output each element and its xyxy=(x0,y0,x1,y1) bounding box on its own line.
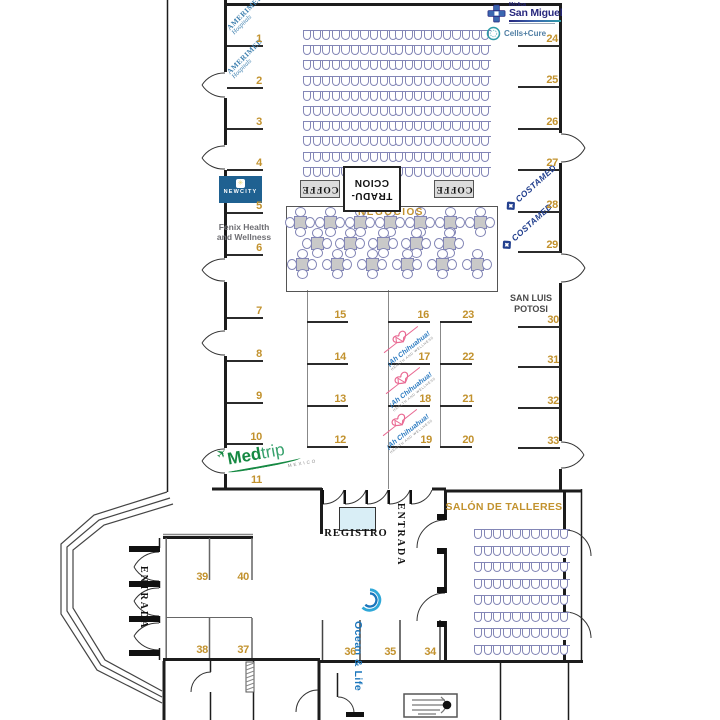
seat xyxy=(474,580,482,589)
seat xyxy=(380,107,388,116)
seat xyxy=(443,77,451,86)
seat xyxy=(313,168,321,177)
seat xyxy=(414,137,422,146)
newcity-logo-booth-5: NEWCITY xyxy=(219,176,262,203)
seat xyxy=(560,530,568,539)
seat xyxy=(452,168,460,177)
seating-block-salon xyxy=(474,529,570,655)
seat xyxy=(503,530,511,539)
seat xyxy=(370,137,378,146)
booth-2-number: 2 xyxy=(256,76,262,87)
seat xyxy=(405,122,413,131)
booth-14-number: 14 xyxy=(334,352,346,363)
seat-row xyxy=(303,76,399,86)
seat xyxy=(443,31,451,40)
seat xyxy=(503,580,511,589)
seat xyxy=(541,563,549,572)
seat xyxy=(531,596,539,605)
seat xyxy=(531,629,539,638)
seat xyxy=(433,168,441,177)
seat xyxy=(424,107,432,116)
ocean-wave-icon xyxy=(356,586,384,614)
seat xyxy=(322,61,330,70)
seat xyxy=(332,122,340,131)
seat xyxy=(313,61,321,70)
negocios-table xyxy=(357,249,387,279)
seat xyxy=(481,77,489,86)
seat xyxy=(433,31,441,40)
booth-23-number: 23 xyxy=(462,310,474,321)
seat-row xyxy=(303,136,399,146)
seat xyxy=(474,563,482,572)
seat xyxy=(303,92,311,101)
seat xyxy=(433,107,441,116)
seat xyxy=(493,530,501,539)
seat xyxy=(452,122,460,131)
seat xyxy=(462,153,470,162)
booth-26-number: 26 xyxy=(546,117,558,128)
seat xyxy=(474,613,482,622)
seat xyxy=(472,46,480,55)
seat xyxy=(414,107,422,116)
seat-row xyxy=(395,76,491,86)
seat-row xyxy=(474,628,570,638)
seat xyxy=(472,168,480,177)
booth-7-number: 7 xyxy=(256,306,262,317)
seat xyxy=(313,122,321,131)
seat xyxy=(414,31,422,40)
seat xyxy=(332,137,340,146)
booth-20-number: 20 xyxy=(462,435,474,446)
angled-corridor-walls xyxy=(61,492,173,703)
booth-8-number: 8 xyxy=(256,349,262,360)
seat xyxy=(303,122,311,131)
seat xyxy=(452,137,460,146)
seat xyxy=(341,61,349,70)
seat xyxy=(424,137,432,146)
seat xyxy=(560,613,568,622)
seat xyxy=(341,137,349,146)
seat xyxy=(433,61,441,70)
seat xyxy=(351,137,359,146)
seat xyxy=(370,31,378,40)
negocios-table xyxy=(322,249,352,279)
booth-39-number: 39 xyxy=(196,572,208,583)
seat xyxy=(462,92,470,101)
booth-10-number: 10 xyxy=(250,432,262,443)
seat xyxy=(462,31,470,40)
seat xyxy=(541,596,549,605)
seat xyxy=(474,646,482,655)
seat xyxy=(370,153,378,162)
seat xyxy=(531,563,539,572)
seat xyxy=(462,137,470,146)
seat xyxy=(462,77,470,86)
booth-13-number: 13 xyxy=(334,394,346,405)
booth-37-number: 37 xyxy=(237,645,249,656)
cells-cure-icon xyxy=(486,26,501,41)
seat xyxy=(380,122,388,131)
seat xyxy=(433,46,441,55)
booth-31-number: 31 xyxy=(547,355,559,366)
seat-row xyxy=(474,562,570,572)
seat xyxy=(405,46,413,55)
seat xyxy=(551,530,559,539)
seat xyxy=(351,153,359,162)
booth-16-number: 16 xyxy=(417,310,429,321)
seat xyxy=(493,629,501,638)
seat xyxy=(472,137,480,146)
seat xyxy=(341,77,349,86)
seat-row xyxy=(395,45,491,55)
seat xyxy=(405,107,413,116)
seat xyxy=(433,92,441,101)
seat xyxy=(332,107,340,116)
booth-15-number: 15 xyxy=(334,310,346,321)
seat xyxy=(481,153,489,162)
seat xyxy=(351,122,359,131)
seat-row xyxy=(303,91,399,101)
seat xyxy=(351,107,359,116)
seat xyxy=(332,153,340,162)
seat xyxy=(303,46,311,55)
seat xyxy=(503,563,511,572)
seat xyxy=(303,61,311,70)
seat xyxy=(484,547,492,556)
seat xyxy=(395,46,403,55)
seat xyxy=(493,563,501,572)
booth-21-number: 21 xyxy=(462,394,474,405)
booth-29-number: 29 xyxy=(546,240,558,251)
seat xyxy=(472,153,480,162)
seat xyxy=(474,596,482,605)
seat xyxy=(452,92,460,101)
booth-25-number: 25 xyxy=(546,75,558,86)
seat xyxy=(414,168,422,177)
seat xyxy=(522,629,530,638)
seat xyxy=(541,629,549,638)
newcity-flower-icon xyxy=(236,179,245,188)
seat xyxy=(481,46,489,55)
seat xyxy=(322,137,330,146)
cells-cure-logo-booth-24: Cells+Cure xyxy=(486,26,546,41)
seat xyxy=(531,613,539,622)
san-miguel-tagline-line xyxy=(509,23,555,24)
seat xyxy=(481,107,489,116)
seat xyxy=(551,613,559,622)
hatched-wall xyxy=(246,662,254,692)
seat xyxy=(472,61,480,70)
seat xyxy=(481,168,489,177)
booth-24-number: 24 xyxy=(546,34,558,45)
seat xyxy=(351,77,359,86)
translation-booth: TRADU- CCION xyxy=(343,166,401,212)
booth-6-number: 6 xyxy=(256,243,262,254)
seat xyxy=(313,137,321,146)
seating-block-top-right xyxy=(395,30,491,177)
seat xyxy=(541,613,549,622)
seat xyxy=(560,596,568,605)
seat xyxy=(303,31,311,40)
seat xyxy=(414,92,422,101)
seat xyxy=(531,580,539,589)
seat xyxy=(395,61,403,70)
seat-row xyxy=(395,60,491,70)
seat xyxy=(522,580,530,589)
seat xyxy=(512,596,520,605)
seat xyxy=(370,107,378,116)
seat xyxy=(380,137,388,146)
seat xyxy=(493,596,501,605)
seat xyxy=(405,61,413,70)
seat xyxy=(360,92,368,101)
seat xyxy=(360,122,368,131)
seat xyxy=(332,46,340,55)
booth-19-number: 19 xyxy=(420,435,432,446)
seat xyxy=(370,46,378,55)
seat xyxy=(493,613,501,622)
booth-12-number: 12 xyxy=(334,435,346,446)
seat xyxy=(395,92,403,101)
seat xyxy=(313,107,321,116)
negocios-table xyxy=(287,249,317,279)
seat xyxy=(405,92,413,101)
escalator-icon xyxy=(404,694,457,717)
seat xyxy=(443,92,451,101)
seat-row xyxy=(303,106,399,116)
seat xyxy=(380,46,388,55)
booth-30-number: 30 xyxy=(547,315,559,326)
booth-33-number: 33 xyxy=(547,436,559,447)
seat xyxy=(474,530,482,539)
seat xyxy=(452,31,460,40)
seat xyxy=(512,613,520,622)
coffee-stand-left: COFFE xyxy=(300,180,340,198)
seat xyxy=(360,107,368,116)
seat xyxy=(424,122,432,131)
seat xyxy=(481,122,489,131)
seat xyxy=(472,92,480,101)
seat-row xyxy=(303,60,399,70)
seat-row xyxy=(303,45,399,55)
seat xyxy=(551,596,559,605)
seat xyxy=(462,61,470,70)
seat xyxy=(303,77,311,86)
seat xyxy=(503,596,511,605)
san-luis-potosi-label: SAN LUIS POTOSI xyxy=(504,293,558,316)
seat xyxy=(360,31,368,40)
negocios-table xyxy=(392,249,422,279)
seat-row xyxy=(474,595,570,605)
seat xyxy=(522,563,530,572)
seat xyxy=(414,46,422,55)
seat-row xyxy=(474,546,570,556)
san-miguel-logo-booth-24: Médica San Miguel xyxy=(487,3,562,24)
registro-label: REGISTRO xyxy=(324,528,388,539)
seat xyxy=(360,61,368,70)
entrada-main-label: ENTRADA xyxy=(395,503,406,555)
seat xyxy=(484,613,492,622)
seat xyxy=(351,46,359,55)
seat xyxy=(360,137,368,146)
seat-row xyxy=(303,121,399,131)
seat xyxy=(443,122,451,131)
seat xyxy=(541,580,549,589)
seat xyxy=(395,153,403,162)
seat-row xyxy=(395,167,491,177)
seat xyxy=(522,596,530,605)
seat xyxy=(322,46,330,55)
booth-5-number: 5 xyxy=(256,201,262,212)
seat xyxy=(424,77,432,86)
seat xyxy=(341,92,349,101)
booth-11-number: 11 xyxy=(251,475,262,486)
seat xyxy=(414,77,422,86)
seat xyxy=(462,107,470,116)
seat xyxy=(332,92,340,101)
seat xyxy=(493,646,501,655)
seat xyxy=(551,646,559,655)
fenix-label-booth-6: Fenix Health and Wellness xyxy=(211,222,277,242)
negocios-table xyxy=(462,249,492,279)
seat xyxy=(370,122,378,131)
seat xyxy=(322,107,330,116)
booth-17-number: 17 xyxy=(418,352,430,363)
seat xyxy=(313,77,321,86)
seat xyxy=(322,122,330,131)
seat xyxy=(332,31,340,40)
seat xyxy=(370,61,378,70)
seat xyxy=(360,153,368,162)
seat xyxy=(452,46,460,55)
seat xyxy=(503,646,511,655)
seat xyxy=(531,547,539,556)
seat xyxy=(380,153,388,162)
seat xyxy=(541,646,549,655)
seat xyxy=(332,77,340,86)
seat xyxy=(551,563,559,572)
seat xyxy=(395,122,403,131)
negocios-table xyxy=(427,249,457,279)
seat xyxy=(424,46,432,55)
booth-36-number: 36 xyxy=(344,647,356,658)
seat xyxy=(462,168,470,177)
seat xyxy=(503,613,511,622)
seat xyxy=(484,563,492,572)
seat xyxy=(380,31,388,40)
booth-32-number: 32 xyxy=(547,396,559,407)
entrada-wing-label: ENTRADA xyxy=(138,566,149,628)
san-miguel-bar xyxy=(509,20,561,22)
seat xyxy=(360,46,368,55)
seat xyxy=(341,107,349,116)
booth-34-number: 34 xyxy=(424,647,436,658)
seat xyxy=(541,547,549,556)
seat xyxy=(424,92,432,101)
seat xyxy=(551,629,559,638)
seat-row xyxy=(474,645,570,655)
seat xyxy=(313,92,321,101)
seat xyxy=(341,46,349,55)
seat xyxy=(452,153,460,162)
seat-row xyxy=(395,136,491,146)
salon-de-talleres-label: SALÓN DE TALLERES xyxy=(444,501,564,513)
seat xyxy=(560,563,568,572)
ocean-life-logo: Ocean & Life xyxy=(352,586,388,691)
seat xyxy=(560,629,568,638)
seat-row xyxy=(395,121,491,131)
seat xyxy=(560,646,568,655)
seat xyxy=(512,563,520,572)
seat xyxy=(341,122,349,131)
seat xyxy=(551,547,559,556)
seat xyxy=(560,580,568,589)
seat xyxy=(405,168,413,177)
seat xyxy=(493,547,501,556)
seat xyxy=(341,31,349,40)
seat xyxy=(560,547,568,556)
seat xyxy=(512,629,520,638)
seat xyxy=(484,646,492,655)
seat xyxy=(452,107,460,116)
booth-38-number: 38 xyxy=(196,645,208,656)
seat xyxy=(443,107,451,116)
seat xyxy=(351,31,359,40)
seat xyxy=(395,137,403,146)
seat xyxy=(462,122,470,131)
seat xyxy=(512,646,520,655)
seat xyxy=(303,137,311,146)
seat xyxy=(322,168,330,177)
booth-40-number: 40 xyxy=(237,572,249,583)
seat xyxy=(512,530,520,539)
seat xyxy=(313,31,321,40)
seat xyxy=(522,547,530,556)
seat xyxy=(370,77,378,86)
seat xyxy=(443,153,451,162)
booth-35-number: 35 xyxy=(384,647,396,658)
seat xyxy=(341,153,349,162)
seat xyxy=(481,61,489,70)
seat-row xyxy=(303,152,399,162)
seat xyxy=(551,580,559,589)
translation-booth-label: TRADU- CCION xyxy=(351,176,392,202)
seat xyxy=(332,61,340,70)
booth-3-number: 3 xyxy=(256,117,262,128)
seat xyxy=(303,168,311,177)
booth-18-number: 18 xyxy=(419,394,431,405)
seat xyxy=(405,31,413,40)
seat-row xyxy=(474,612,570,622)
seat xyxy=(433,122,441,131)
seat xyxy=(395,107,403,116)
seat xyxy=(474,629,482,638)
seat xyxy=(313,46,321,55)
seat-row xyxy=(395,91,491,101)
seat xyxy=(443,61,451,70)
seat xyxy=(472,77,480,86)
seat xyxy=(522,646,530,655)
booth-9-number: 9 xyxy=(256,391,262,402)
seat xyxy=(322,153,330,162)
seat-row xyxy=(474,529,570,539)
seat xyxy=(452,61,460,70)
booth-4-number: 4 xyxy=(256,158,262,169)
seat-row xyxy=(474,579,570,589)
booth-22-number: 22 xyxy=(462,352,474,363)
seat xyxy=(472,107,480,116)
seat xyxy=(443,46,451,55)
